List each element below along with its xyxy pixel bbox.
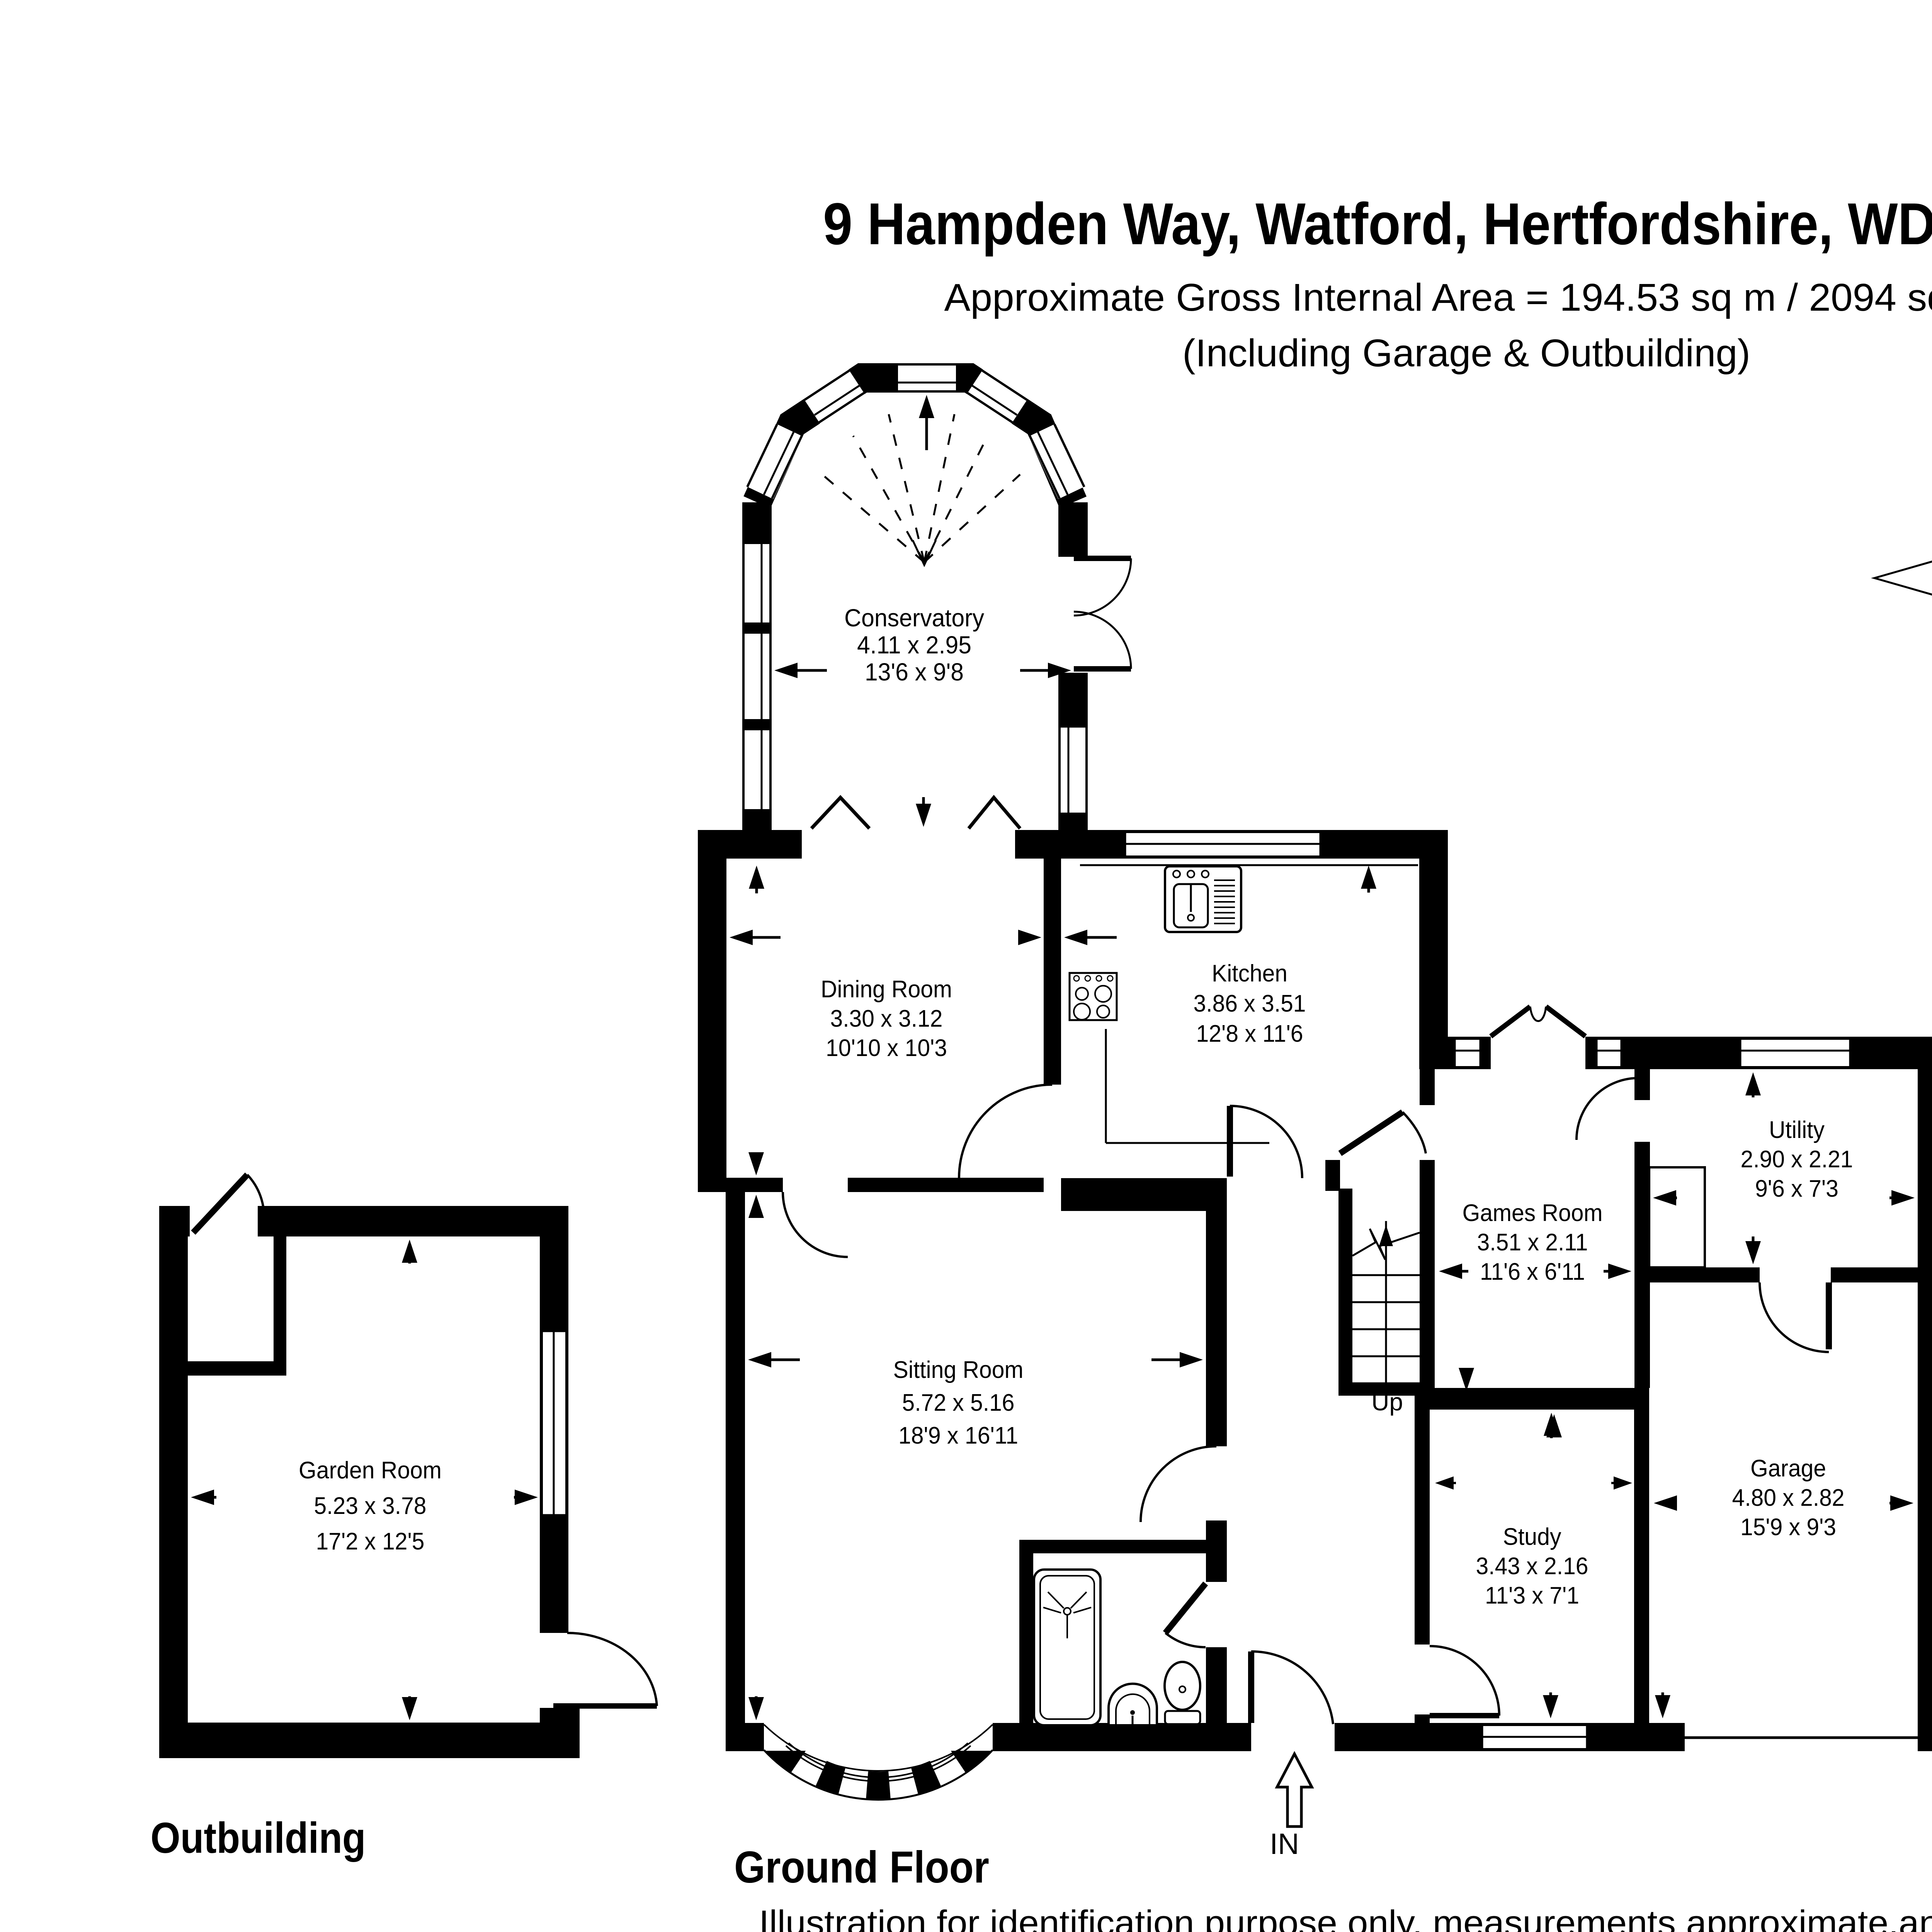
svg-text:Ground Floor: Ground Floor [734, 1842, 989, 1892]
svg-text:IN: IN [1270, 1828, 1299, 1861]
svg-text:2.90 x 2.21: 2.90 x 2.21 [1741, 1146, 1853, 1173]
svg-text:Games Room: Games Room [1463, 1200, 1603, 1226]
svg-text:3.51 x 2.11: 3.51 x 2.11 [1477, 1229, 1588, 1256]
svg-text:(Including Garage & Outbuildin: (Including Garage & Outbuilding) [1182, 332, 1750, 375]
svg-text:9 Hampden Way, Watford, Hertfo: 9 Hampden Way, Watford, Hertfordshire, W… [823, 191, 1932, 257]
svg-text:4.80 x 2.82: 4.80 x 2.82 [1732, 1485, 1845, 1511]
svg-text:Conservatory: Conservatory [844, 604, 984, 632]
svg-text:5.72 x 5.16: 5.72 x 5.16 [902, 1389, 1015, 1416]
svg-text:Sitting Room: Sitting Room [893, 1357, 1024, 1383]
svg-text:18'9 x 16'11: 18'9 x 16'11 [898, 1422, 1018, 1449]
svg-text:Utility: Utility [1769, 1117, 1825, 1143]
svg-text:Garden Room: Garden Room [299, 1457, 442, 1484]
svg-text:Illustration for identificatio: Illustration for identification purpose … [759, 1903, 1932, 1932]
svg-text:12'8 x 11'6: 12'8 x 11'6 [1196, 1020, 1303, 1047]
svg-text:11'3 x 7'1: 11'3 x 7'1 [1485, 1582, 1579, 1609]
svg-text:Dining Room: Dining Room [821, 976, 952, 1003]
svg-text:Kitchen: Kitchen [1212, 960, 1287, 987]
svg-text:Outbuilding: Outbuilding [151, 1814, 366, 1862]
svg-text:10'10 x 10'3: 10'10 x 10'3 [826, 1035, 947, 1061]
svg-text:17'2 x 12'5: 17'2 x 12'5 [316, 1528, 425, 1555]
svg-text:Garage: Garage [1750, 1455, 1826, 1482]
svg-text:3.30 x 3.12: 3.30 x 3.12 [830, 1005, 943, 1032]
svg-text:13'6 x 9'8: 13'6 x 9'8 [865, 658, 964, 686]
svg-text:11'6 x 6'11: 11'6 x 6'11 [1480, 1259, 1585, 1285]
svg-text:Approximate Gross Internal Are: Approximate Gross Internal Area = 194.53… [944, 276, 1932, 319]
svg-text:Study: Study [1503, 1524, 1561, 1550]
svg-text:5.23 x 3.78: 5.23 x 3.78 [314, 1493, 427, 1519]
svg-text:Up: Up [1371, 1388, 1403, 1416]
svg-text:3.43 x 2.16: 3.43 x 2.16 [1476, 1553, 1588, 1580]
svg-text:9'6 x 7'3: 9'6 x 7'3 [1755, 1175, 1838, 1202]
svg-text:15'9 x 9'3: 15'9 x 9'3 [1740, 1514, 1836, 1541]
svg-text:4.11 x 2.95: 4.11 x 2.95 [857, 631, 971, 659]
svg-text:3.86 x 3.51: 3.86 x 3.51 [1194, 990, 1306, 1017]
